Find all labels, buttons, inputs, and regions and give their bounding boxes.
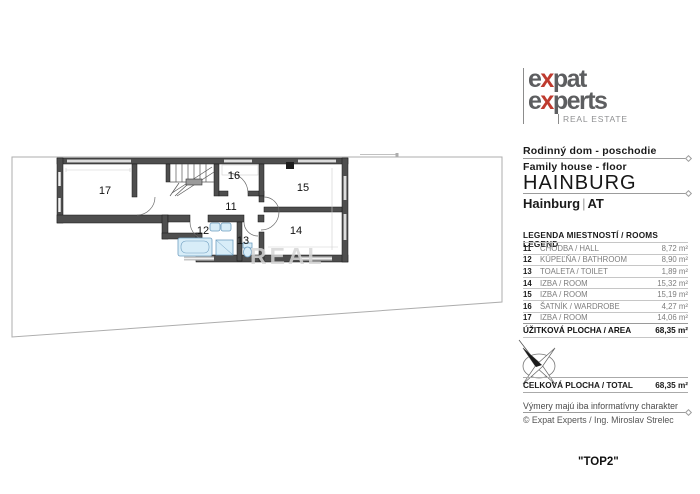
room-label-13: 13 — [237, 235, 249, 247]
title-slovak: Rodinný dom - poschodie — [523, 145, 688, 157]
legend-row: 15IZBA / ROOM15,19 m² — [523, 288, 688, 300]
company-logo: expat experts REAL ESTATE — [523, 68, 628, 124]
floor-plan-svg: REAL 17 16 15 11 12 13 14 — [0, 0, 515, 494]
unit-label: "TOP2" — [578, 456, 619, 468]
legend-row: 12KÚPEĽŇA / BATHROOM8,90 m² — [523, 254, 688, 266]
floor-plan-sheet: REAL 17 16 15 11 12 13 14 expat experts … — [0, 0, 700, 494]
room-label-17: 17 — [99, 185, 111, 197]
room-label-11: 11 — [225, 201, 236, 213]
location-line: Hainburg|AT — [523, 196, 688, 211]
logo-tagline: REAL ESTATE — [558, 114, 628, 124]
watermark-text: REAL — [250, 243, 325, 269]
info-panel: expat experts REAL ESTATE Rodinný dom - … — [515, 0, 700, 494]
total-area-row: CELKOVÁ PLOCHA / TOTAL68,35 m² — [523, 377, 688, 393]
boundary-dimension-line — [360, 153, 399, 157]
stairs — [170, 164, 214, 196]
sink-icon — [210, 223, 220, 231]
copyright-text: © Expat Experts / Ing. Miroslav Strelec — [523, 415, 688, 425]
room-label-12: 12 — [197, 225, 209, 237]
legend-row: 16ŠATNÍK / WARDROBE4,27 m² — [523, 300, 688, 312]
room-label-14: 14 — [290, 225, 302, 237]
city-name: HAINBURG — [523, 172, 688, 195]
divider-line — [523, 193, 688, 194]
legend-row: 11CHODBA / HALL8,72 m² — [523, 242, 688, 254]
room-label-16: 16 — [228, 170, 240, 182]
chimney-icon — [286, 162, 294, 169]
disclaimer-text: Výmery majú iba informatívny charakter — [523, 401, 688, 411]
logo-line2: experts — [528, 90, 628, 112]
legend-row: 14IZBA / ROOM15,32 m² — [523, 277, 688, 289]
divider-line — [523, 158, 688, 159]
room-label-15: 15 — [297, 182, 309, 194]
legend-row: 13TOALETA / TOILET1,89 m² — [523, 265, 688, 277]
legend-table: 11CHODBA / HALL8,72 m² 12KÚPEĽŇA / BATHR… — [523, 242, 688, 338]
sink-icon — [221, 223, 231, 231]
divider-line — [523, 412, 688, 413]
legend-row: 17IZBA / ROOM14,06 m² — [523, 312, 688, 324]
